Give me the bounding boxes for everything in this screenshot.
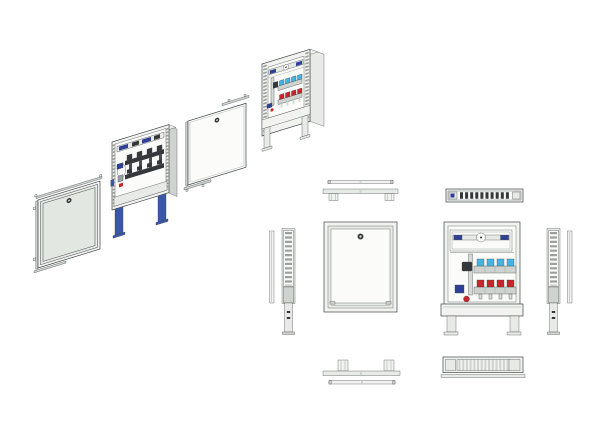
orthographic-views xyxy=(270,181,573,385)
pump-body xyxy=(118,175,123,183)
end-compartment xyxy=(509,360,520,371)
mixing-valve-dark xyxy=(462,262,472,271)
return-valve-cap xyxy=(507,280,514,287)
part-open-cabinet xyxy=(262,49,324,151)
rail-screw xyxy=(244,94,246,97)
rail-screw xyxy=(186,189,188,192)
front-view-closed xyxy=(324,222,397,312)
end-compartment xyxy=(513,192,521,199)
part-inner-cover-panel xyxy=(184,93,249,192)
bottom-view-cabinet-strip xyxy=(323,360,400,376)
door-panel xyxy=(331,229,390,303)
wall-bracket xyxy=(385,194,394,201)
union-fitting-blue xyxy=(454,235,462,240)
technical-drawing-canvas xyxy=(0,0,600,424)
frame-screw xyxy=(99,174,101,177)
rail-screw xyxy=(228,99,230,102)
supply-pipe xyxy=(469,254,473,295)
part-door-frame-assembly xyxy=(33,174,102,273)
wall-bracket xyxy=(338,360,348,371)
base-strip xyxy=(441,375,525,378)
top-view-manifold xyxy=(446,189,523,202)
adjustable-leg-blue xyxy=(113,206,125,238)
wall-bracket-pin xyxy=(480,237,482,239)
union-fitting-blue xyxy=(501,235,509,240)
frame-screw xyxy=(33,258,35,261)
supply-pipe xyxy=(271,77,274,106)
cabinet-leg xyxy=(507,316,521,335)
flow-meter-cap xyxy=(497,259,504,266)
drain-valve-red xyxy=(464,296,470,302)
side-view-right xyxy=(547,229,572,335)
rail-clip-blue xyxy=(111,179,114,186)
frame-screw xyxy=(35,194,37,197)
wall-bracket xyxy=(329,194,338,201)
foot-mark xyxy=(386,302,391,305)
door-lock-icon xyxy=(358,234,364,240)
side-view-left xyxy=(270,229,296,335)
bottom-view-door-strip xyxy=(329,381,395,385)
open-cabinet-depth-face xyxy=(310,49,324,126)
flow-meter-cap xyxy=(487,259,494,266)
bottom-view-slotted xyxy=(441,357,525,378)
cabinet-leg xyxy=(548,303,560,335)
top-view-cabinet-strip xyxy=(323,189,398,201)
base-band xyxy=(441,304,523,316)
ball-valve-blue xyxy=(455,285,464,293)
cabinet-side-depth-face xyxy=(169,126,177,197)
cover-panel xyxy=(188,103,246,185)
return-valve-cap xyxy=(477,280,484,287)
cabinet-leg xyxy=(283,303,295,335)
return-valve-cap xyxy=(487,280,494,287)
rail-screw xyxy=(202,184,204,187)
cabinet-leg xyxy=(444,316,458,335)
wall-bracket xyxy=(384,360,394,371)
flow-meter-cap xyxy=(477,259,484,266)
flow-meter-cap xyxy=(507,259,514,266)
part-cabinet-with-manifold xyxy=(111,125,177,239)
top-rail-section xyxy=(450,230,512,251)
lower-bracket xyxy=(284,287,294,303)
drawing-svg xyxy=(0,0,600,424)
lower-bracket xyxy=(549,287,559,303)
adjustable-leg-blue xyxy=(156,193,168,225)
frame-screw xyxy=(33,207,35,210)
return-valve-cap xyxy=(497,280,504,287)
fitting-blue xyxy=(451,194,455,198)
front-view-open xyxy=(441,222,523,335)
foot-mark xyxy=(330,302,335,305)
top-view-door-strip xyxy=(328,181,393,184)
end-compartment xyxy=(446,360,456,371)
exploded-isometric-view xyxy=(33,49,324,273)
